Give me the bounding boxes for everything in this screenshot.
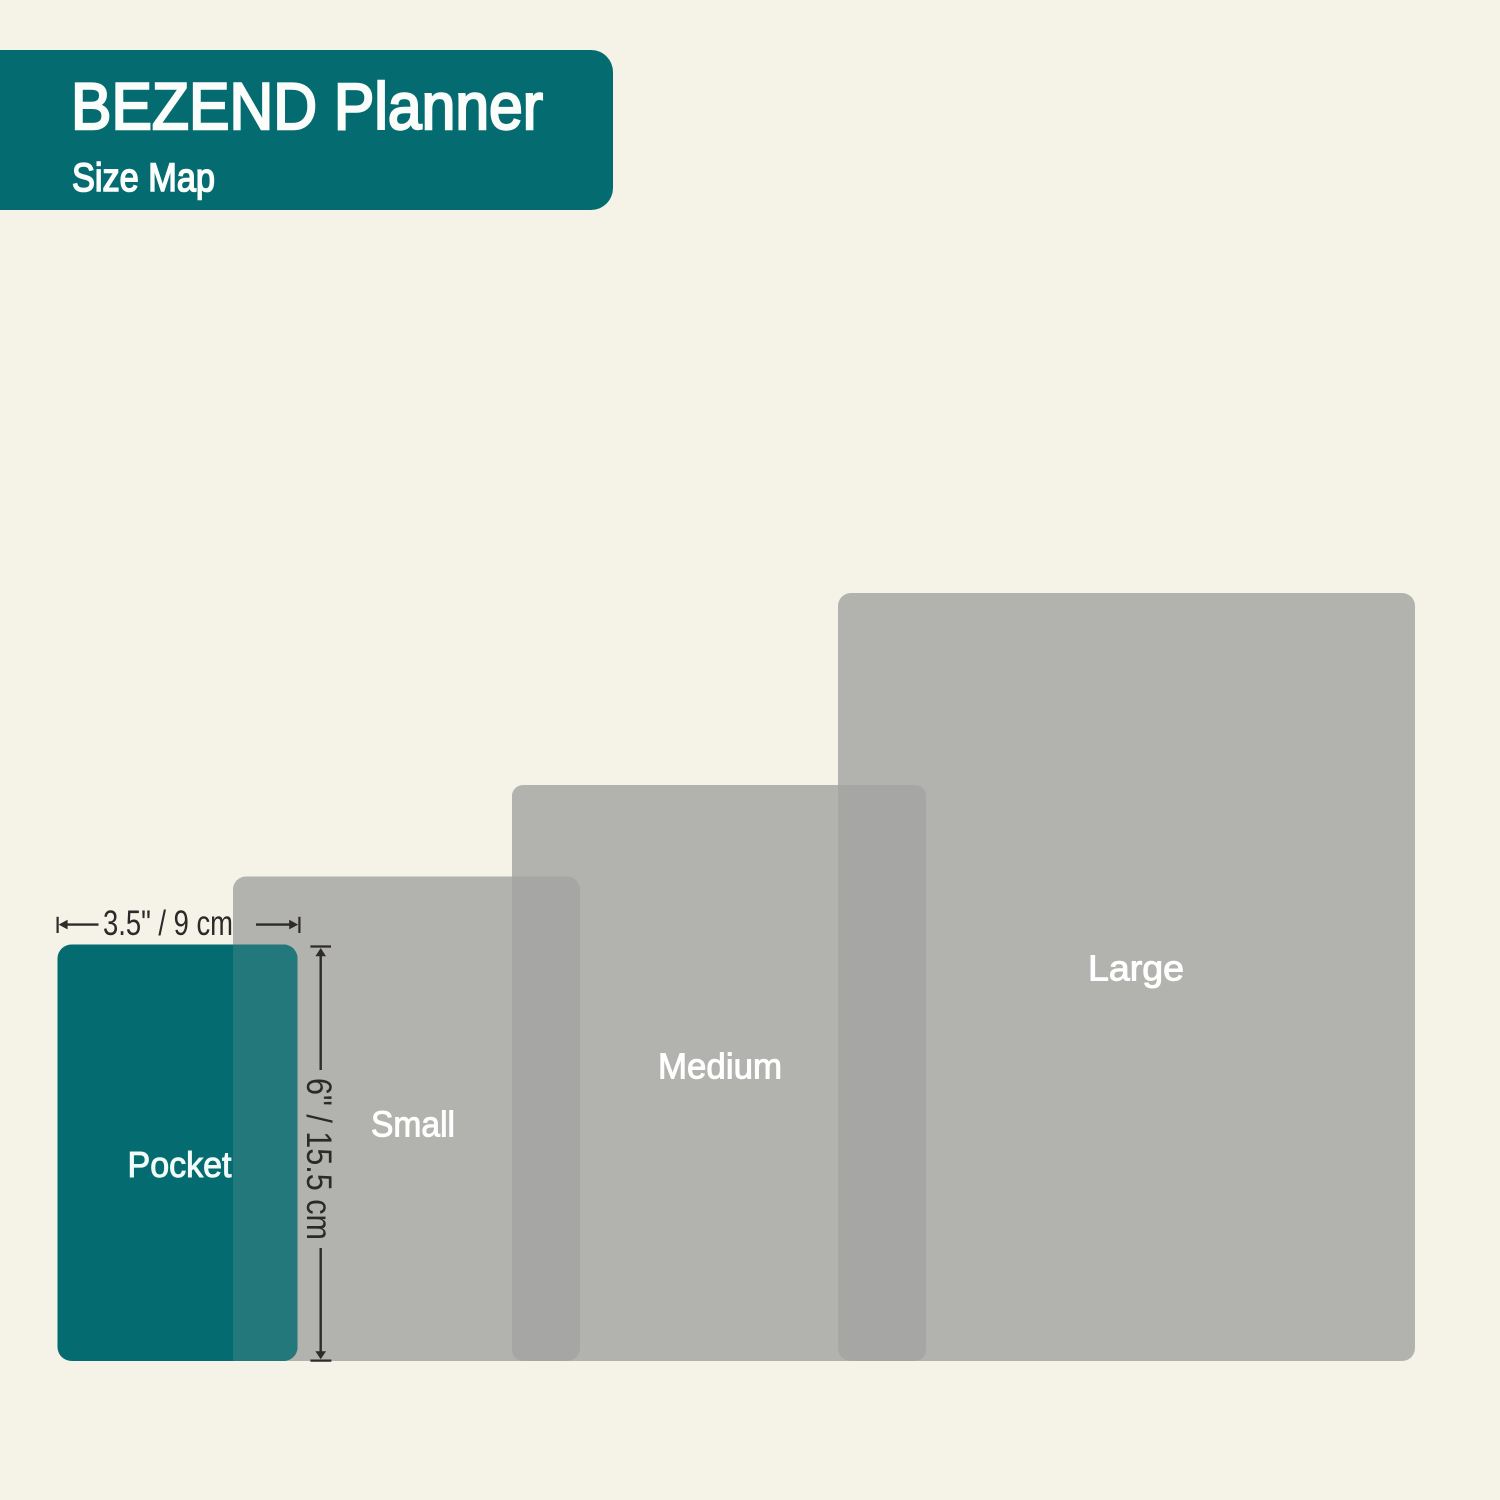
svg-text:BEZEND Planner: BEZEND Planner [71, 69, 543, 143]
svg-text:Large: Large [1088, 948, 1184, 989]
svg-text:Size Map: Size Map [72, 156, 215, 200]
svg-text:Small: Small [371, 1104, 455, 1145]
svg-text:6" / 15.5 cm: 6" / 15.5 cm [299, 1078, 338, 1240]
svg-text:3.5" / 9 cm: 3.5" / 9 cm [103, 904, 233, 943]
svg-text:Medium: Medium [658, 1046, 782, 1087]
svg-text:Pocket: Pocket [128, 1144, 232, 1185]
